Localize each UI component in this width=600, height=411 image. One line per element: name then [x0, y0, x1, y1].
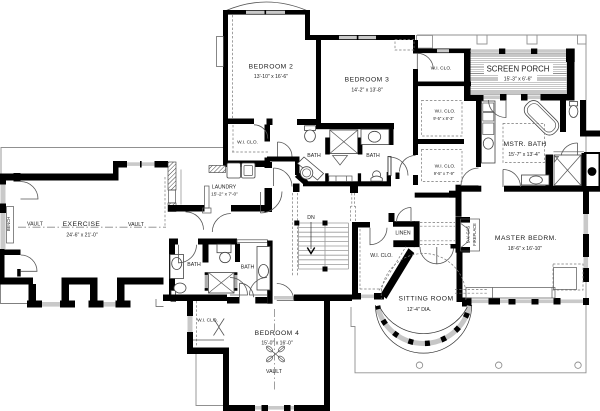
svg-text:LINEN: LINEN: [395, 231, 411, 237]
svg-text:W.I. CLO.: W.I. CLO.: [435, 164, 456, 170]
svg-text:15'-3" x 6'-6": 15'-3" x 6'-6": [504, 77, 533, 83]
svg-text:BATH: BATH: [241, 265, 255, 271]
svg-text:D.V. GAS: D.V. GAS: [465, 226, 470, 244]
svg-text:W.I. CLO.: W.I. CLO.: [431, 66, 452, 72]
svg-text:W.I. CLO.: W.I. CLO.: [237, 140, 258, 146]
svg-text:BATH: BATH: [307, 153, 321, 159]
svg-text:BEDROOM 3: BEDROOM 3: [345, 77, 390, 84]
svg-text:EXERCISE: EXERCISE: [63, 221, 101, 228]
svg-text:BEDROOM 2: BEDROOM 2: [249, 64, 294, 71]
svg-text:W.I. CLO.: W.I. CLO.: [197, 318, 218, 324]
svg-text:24'-6" x 21'-0": 24'-6" x 21'-0": [66, 233, 98, 239]
svg-text:15'-2" x 7'-0": 15'-2" x 7'-0": [211, 192, 238, 198]
svg-text:W.I. CLO.: W.I. CLO.: [370, 253, 392, 259]
svg-text:9'-5" x 8'-3": 9'-5" x 8'-3": [433, 116, 454, 121]
svg-text:14'-2" x 13'-8": 14'-2" x 13'-8": [351, 88, 383, 94]
svg-text:15'-7" x 13'-4": 15'-7" x 13'-4": [508, 152, 540, 158]
svg-text:12'-4" DIA.: 12'-4" DIA.: [407, 307, 431, 313]
svg-text:DN: DN: [307, 215, 315, 221]
svg-text:18'-6" x 16'-10": 18'-6" x 16'-10": [508, 246, 542, 252]
svg-text:13'-10" x 16'-6": 13'-10" x 16'-6": [254, 74, 288, 80]
svg-text:FIREPLACE: FIREPLACE: [472, 223, 477, 246]
svg-text:MASTER BEDRM.: MASTER BEDRM.: [495, 235, 557, 242]
svg-text:MSTR. BATH: MSTR. BATH: [504, 141, 547, 148]
svg-text:VAULT: VAULT: [27, 222, 44, 228]
svg-text:BENCH: BENCH: [6, 217, 11, 231]
svg-text:SITTING ROOM: SITTING ROOM: [398, 296, 453, 303]
svg-text:BEDROOM 4: BEDROOM 4: [255, 330, 300, 337]
svg-text:BATH: BATH: [187, 262, 201, 268]
svg-text:LAUNDRY: LAUNDRY: [212, 185, 237, 191]
svg-text:SCREEN PORCH: SCREEN PORCH: [487, 64, 550, 73]
svg-text:W.I. CLO.: W.I. CLO.: [435, 109, 456, 115]
svg-text:9'-5" x 7'-9": 9'-5" x 7'-9": [434, 171, 455, 176]
svg-text:VAULT: VAULT: [266, 369, 283, 375]
svg-text:BATH: BATH: [366, 153, 380, 159]
svg-text:VAULT: VAULT: [128, 222, 145, 228]
svg-text:15'-0" x 16'-0": 15'-0" x 16'-0": [261, 341, 293, 347]
